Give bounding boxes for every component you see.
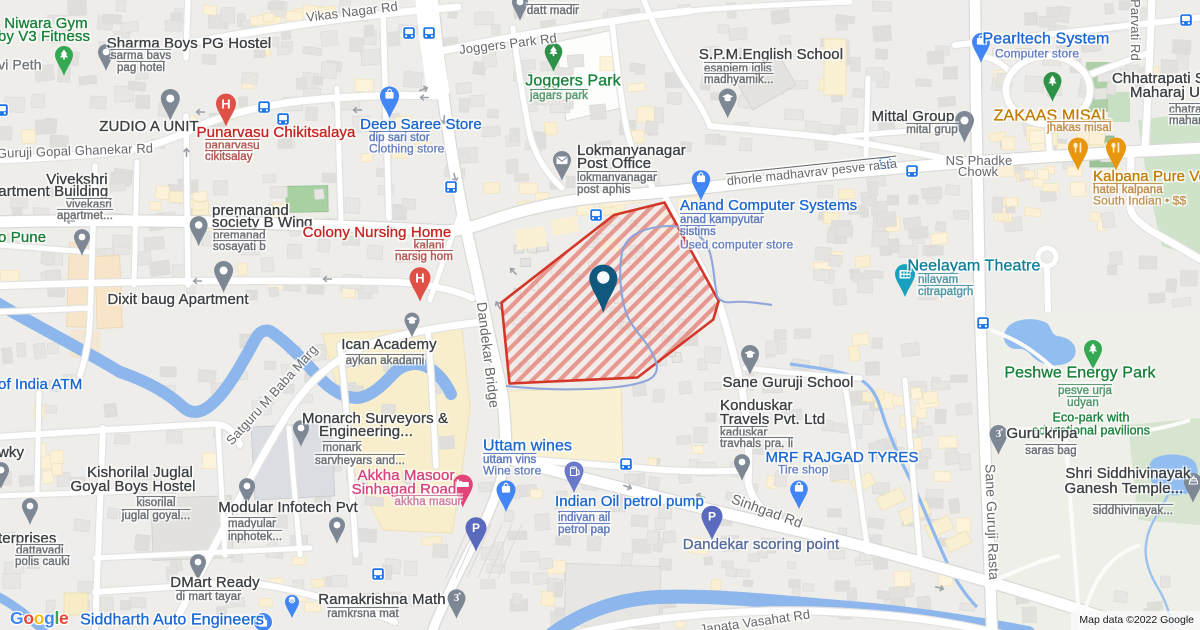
svg-text:H: H — [415, 271, 424, 286]
svg-text:P: P — [708, 509, 716, 523]
svg-text:H: H — [221, 97, 230, 112]
svg-text:300: 300 — [288, 599, 296, 604]
svg-text:P: P — [472, 521, 480, 535]
